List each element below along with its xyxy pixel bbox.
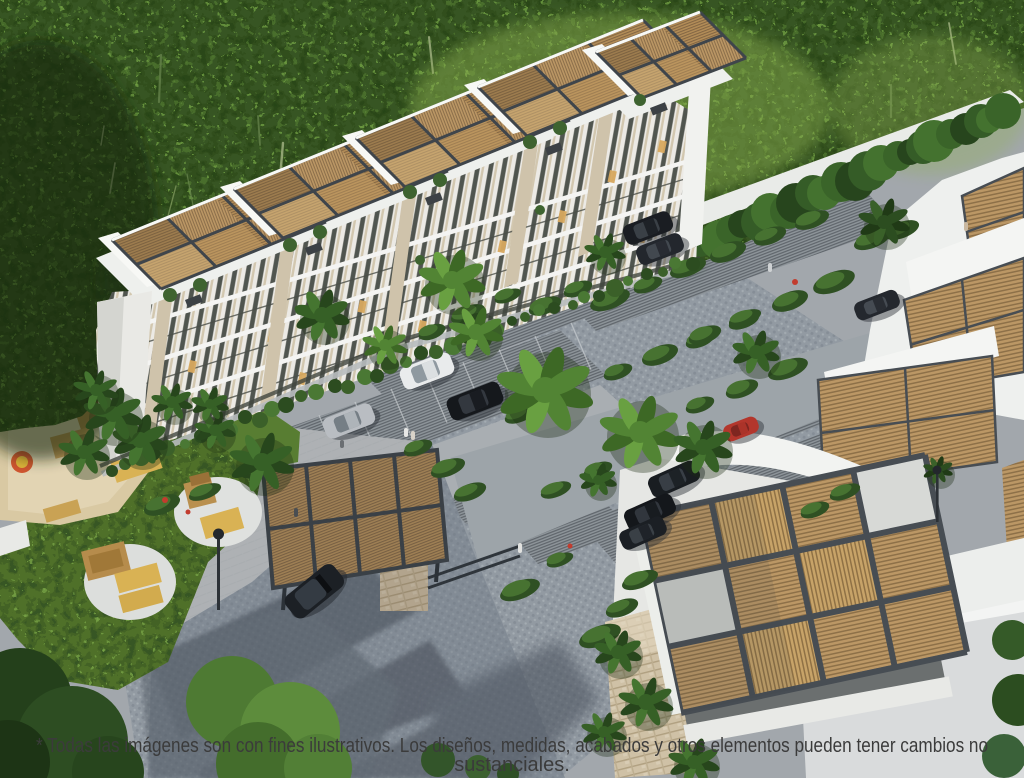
svg-text:sustanciales.: sustanciales. bbox=[454, 754, 570, 776]
